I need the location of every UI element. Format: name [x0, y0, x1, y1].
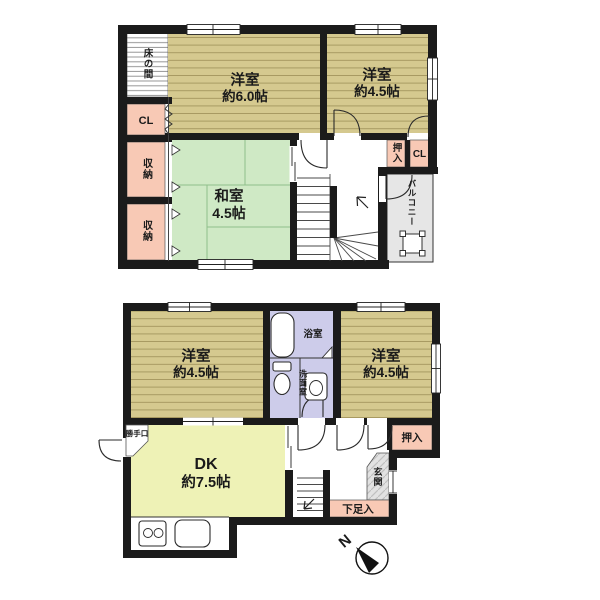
table-icon: [400, 231, 425, 256]
window: [428, 58, 438, 100]
label-washitsu-size: 4.5帖: [212, 205, 245, 221]
compass: N: [336, 531, 388, 574]
label-western45-2f-name: 洋室: [363, 66, 392, 84]
floor-plan-drawing: 床の間 CL 収納 収納 洋室 約6.0帖 洋室 約4.5帖 和室 4.5帖 押…: [0, 0, 600, 600]
window: [432, 344, 441, 393]
window: [355, 25, 401, 35]
window: [187, 25, 240, 35]
label-dk-name: DK: [194, 456, 218, 473]
label-storage-bottom: 収納: [141, 220, 153, 242]
label-western-left-name: 洋室: [182, 347, 211, 365]
label-washroom: 洗面室: [299, 369, 308, 397]
stair-direction-arrow: [357, 197, 368, 208]
first-floor-plan: 洋室 約4.5帖 浴室 洗面室 洋室 約4.5帖 DK 約7.5帖 勝手口 押入…: [99, 303, 441, 559]
staircase-2f: [297, 174, 378, 261]
label-getabako: 下足入: [342, 504, 374, 516]
label-oshiire-2f: 押入: [391, 142, 404, 164]
balcony-door-gap: [379, 176, 386, 202]
door-washroom-hall: [298, 425, 325, 450]
compass-north-label: N: [336, 531, 355, 551]
kitchen-sink-icon: [175, 520, 210, 547]
label-dk-size: 約7.5帖: [181, 473, 231, 491]
dk-hall-opening: [286, 425, 293, 470]
label-western-left-size: 約4.5帖: [173, 364, 219, 380]
label-western-right-size: 約4.5帖: [363, 364, 409, 380]
toilet-tank-icon: [273, 362, 291, 371]
staircase-1f: [297, 478, 323, 511]
second-floor-plan: 床の間 CL 収納 収納 洋室 約6.0帖 洋室 約4.5帖 和室 4.5帖 押…: [118, 25, 438, 270]
door-western-right: [337, 425, 364, 450]
label-balcony: バルコニー: [407, 179, 417, 227]
label-western6-size: 約6.0帖: [222, 88, 268, 104]
entrance-door-gap: [389, 470, 397, 494]
label-western45-2f-size: 約4.5帖: [354, 83, 400, 99]
floorplan-page: 床の間 CL 収納 収納 洋室 約6.0帖 洋室 約4.5帖 和室 4.5帖 押…: [0, 0, 600, 600]
window: [168, 303, 211, 312]
backdoor-swing: [99, 440, 122, 461]
door-western6: [301, 140, 327, 168]
bathtub-icon: [271, 313, 294, 357]
sink-icon: [305, 373, 327, 400]
room-dk-opening: [183, 418, 243, 426]
label-washitsu-name: 和室: [215, 187, 244, 205]
label-western-right-name: 洋室: [372, 347, 401, 365]
label-western6-name: 洋室: [231, 71, 260, 89]
toilet-bowl-icon: [274, 374, 290, 395]
window: [198, 260, 253, 270]
label-katteguchi: 勝手口: [126, 428, 149, 438]
label-tokonoma: 床の間: [142, 48, 154, 80]
label-oshiire-1f: 押入: [402, 431, 423, 444]
window: [357, 303, 405, 312]
washitsu-opening: [290, 146, 298, 182]
label-genkan: 玄関: [373, 466, 383, 487]
label-cl-left: CL: [139, 115, 154, 127]
label-cl-right: CL: [413, 149, 426, 160]
label-storage-top: 収納: [141, 158, 153, 180]
label-bathroom: 浴室: [303, 328, 323, 340]
